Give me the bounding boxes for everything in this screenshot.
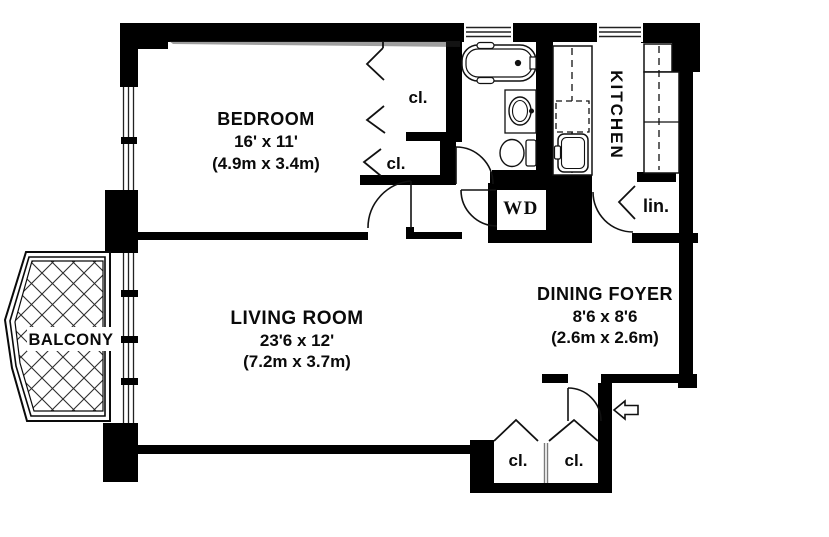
bathroom-sink-faucet (530, 109, 534, 113)
bedroom-label: BEDROOM (217, 109, 315, 129)
wall-left-upper (120, 41, 138, 87)
dining-foyer-dims-metric: (2.6m x 2.6m) (551, 328, 659, 347)
entry-closet-left-label: cl. (509, 451, 528, 470)
wall-livingroom-bottom (135, 445, 472, 454)
bathtub-inner (466, 49, 532, 77)
kitchen-counter-right-upper (644, 44, 672, 72)
toilet-bowl-icon (500, 140, 524, 167)
closet-lower-label: cl. (387, 154, 406, 173)
wall-left-bottom-block (103, 423, 138, 482)
wall-closet-right (598, 383, 612, 493)
bathtub-grip-top (477, 43, 494, 49)
toilet-tank (526, 140, 536, 166)
wall-right (679, 43, 693, 388)
wall-foyer-bottom-right (601, 374, 679, 383)
dining-foyer-label: DINING FOYER (537, 284, 673, 304)
wall-top-right-corner (641, 23, 700, 43)
wall-bath-right (536, 23, 553, 183)
bathtub-grip-bottom (477, 78, 494, 84)
balcony: BALCONY (5, 252, 116, 421)
window-livingroom-west-mullion-1 (121, 290, 138, 297)
wall-bedroom-bottom-right (406, 232, 462, 239)
living-room-label: LIVING ROOM (230, 308, 363, 329)
kitchen-sink-faucet (555, 146, 561, 159)
floor-plan-page: BALCONY (0, 0, 829, 537)
window-livingroom-west-mullion-3 (121, 378, 138, 385)
wall-closet-left-block (470, 440, 494, 488)
wall-closet-bottom (470, 483, 612, 493)
wall-wd-top (490, 172, 548, 183)
wall-closet-low-right (440, 141, 456, 185)
wall-foyer-bottom-left (542, 374, 568, 383)
kitchen-label: KITCHEN (607, 70, 626, 160)
bathtub-drain (516, 61, 521, 66)
living-room-dims: 23'6 x 12' (260, 331, 334, 350)
kitchen-appliance-dashed (556, 101, 589, 132)
bathtub-faucet-icon (530, 57, 536, 69)
closet-upper-label: cl. (409, 88, 428, 107)
washer-dryer-label: WD (503, 198, 539, 219)
balcony-label: BALCONY (28, 331, 113, 349)
wall-bedroom-bottom-left (133, 232, 368, 240)
wall-left-mid (105, 190, 138, 253)
kitchen-sink-inner (562, 138, 585, 169)
linen-closet-label: lin. (643, 196, 669, 216)
wall-bedroom-bath-divider (446, 23, 462, 142)
window-livingroom-west-mullion-2 (121, 336, 138, 343)
wall-foyer-corner-foot (678, 374, 697, 388)
bathroom-sink-inner (513, 101, 528, 122)
living-room-dims-metric: (7.2m x 3.7m) (243, 352, 351, 371)
bedroom-dims-metric: (4.9m x 3.4m) (212, 154, 320, 173)
entry-closet-right-label: cl. (565, 451, 584, 470)
bedroom-dims: 16' x 11' (234, 132, 298, 151)
wall-closet-mid-band (406, 132, 456, 141)
window-bedroom-west-mullion (121, 137, 137, 144)
dining-foyer-dims: 8'6 x 8'6 (573, 307, 638, 326)
wall-wd-bottom (488, 230, 592, 243)
floor-plan: BALCONY (0, 0, 829, 537)
